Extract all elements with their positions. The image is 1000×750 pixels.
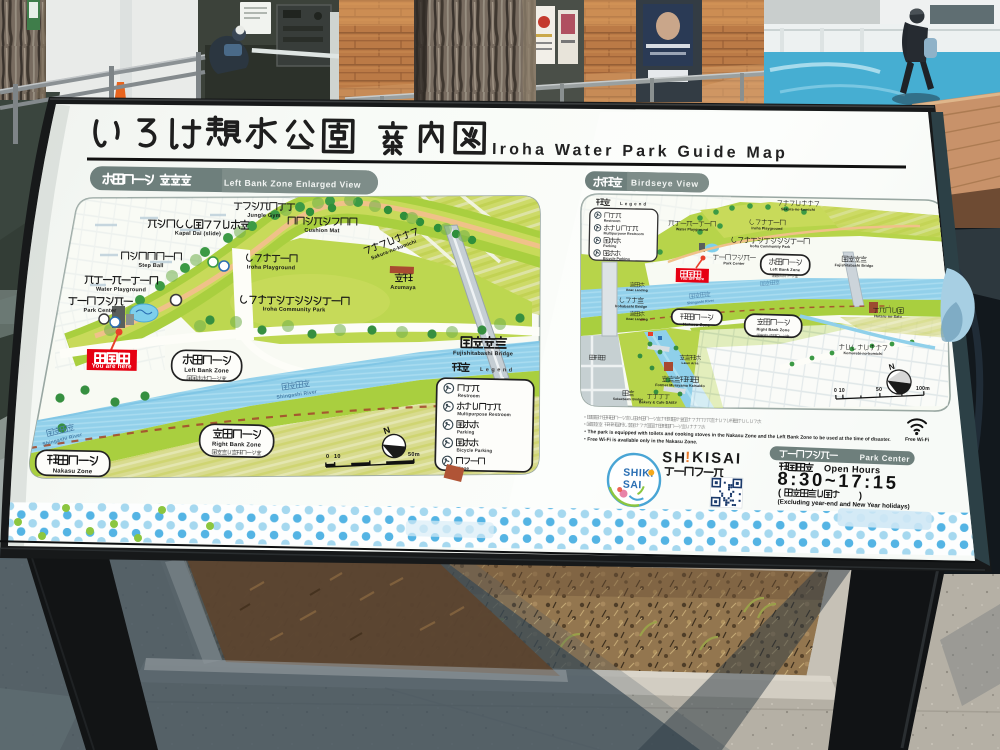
svg-text:Bicycle Parking: Bicycle Parking — [603, 257, 630, 262]
svg-text:Lawn Area: Lawn Area — [682, 361, 699, 365]
svg-text:Left Bank Zone: Left Bank Zone — [770, 267, 800, 272]
svg-text:50: 50 — [876, 387, 882, 393]
svg-text:Fujishitabashi Bridge: Fujishitabashi Bridge — [835, 263, 874, 268]
svg-text:Iroha Community Park: Iroha Community Park — [750, 244, 790, 249]
svg-text:): ) — [859, 491, 863, 502]
svg-text:KISAI: KISAI — [692, 449, 743, 468]
svg-text:SH: SH — [662, 449, 687, 467]
svg-text:10: 10 — [334, 454, 341, 460]
svg-text:Sakura-no-komichi: Sakura-no-komichi — [781, 207, 815, 212]
svg-text:Left Bank Zone: Left Bank Zone — [184, 368, 229, 375]
svg-text:Boat Landing: Boat Landing — [626, 288, 648, 292]
svg-text:Bakery & Cafe DAISY: Bakery & Cafe DAISY — [639, 400, 678, 405]
svg-text:Step Ball: Step Ball — [138, 263, 164, 269]
svg-text:Bicycle Parking: Bicycle Parking — [456, 448, 492, 454]
svg-text:You are here: You are here — [680, 276, 705, 282]
svg-text:Iroha Community Park: Iroha Community Park — [263, 307, 327, 314]
svg-text:0: 0 — [326, 454, 329, 460]
svg-text:Jungle Gym: Jungle Gym — [247, 213, 281, 220]
svg-text:SAI: SAI — [623, 479, 642, 492]
svg-text:Right Bank Zone: Right Bank Zone — [212, 442, 262, 449]
svg-text:Water Playground: Water Playground — [676, 227, 708, 232]
svg-text:Iroha Playground: Iroha Playground — [751, 226, 782, 231]
svg-text:You are here: You are here — [92, 363, 132, 371]
svg-text:Irohabashi Bridge: Irohabashi Bridge — [615, 304, 647, 309]
svg-text:Kapal Dai (slide): Kapal Dai (slide) — [175, 231, 221, 238]
svg-text:Restroom: Restroom — [458, 393, 480, 398]
svg-text:Restroom: Restroom — [604, 219, 621, 223]
svg-text:Iroha Playground: Iroha Playground — [247, 265, 296, 272]
svg-text:Fujishitabashi Bridge: Fujishitabashi Bridge — [453, 351, 513, 358]
svg-text:Multipurpose Restroom: Multipurpose Restroom — [603, 231, 643, 236]
svg-text:0 10: 0 10 — [834, 388, 845, 394]
svg-text:Water Playground: Water Playground — [96, 287, 146, 294]
svg-text:L e g e n d: L e g e n d — [480, 367, 513, 374]
svg-text:Birdseye View: Birdseye View — [631, 177, 699, 188]
svg-text:Hotaru-no-Sato: Hotaru-no-Sato — [874, 314, 902, 319]
svg-text:Free Wi-Fi: Free Wi-Fi — [905, 437, 930, 444]
svg-text:Boat Landing: Boat Landing — [626, 317, 648, 321]
svg-text:100m: 100m — [916, 386, 930, 392]
svg-text:50m: 50m — [408, 452, 420, 458]
svg-text:Parking: Parking — [603, 244, 616, 248]
svg-text:Nakasu Zone: Nakasu Zone — [53, 468, 93, 475]
svg-text:Park Center: Park Center — [83, 308, 117, 315]
svg-text:L e g e n d: L e g e n d — [620, 201, 647, 207]
svg-text:Nakasu Zone: Nakasu Zone — [683, 322, 711, 328]
svg-text:Park Center: Park Center — [723, 261, 745, 265]
svg-text:Parking: Parking — [457, 429, 475, 434]
svg-text:Azumaya: Azumaya — [390, 285, 416, 291]
svg-text:Cushion Mat: Cushion Mat — [304, 228, 339, 235]
svg-text:Komorebi-no-komichi: Komorebi-no-komichi — [843, 351, 882, 356]
